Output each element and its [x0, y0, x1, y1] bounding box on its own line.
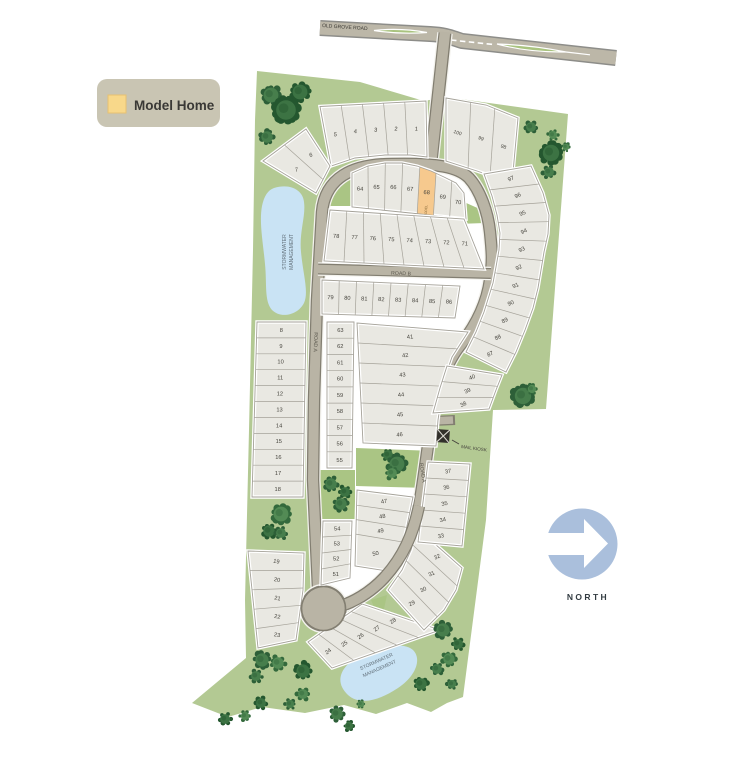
svg-text:70: 70 — [455, 200, 462, 206]
svg-text:44: 44 — [398, 392, 405, 399]
svg-text:57: 57 — [337, 425, 343, 431]
svg-text:53: 53 — [334, 542, 340, 548]
svg-text:48: 48 — [379, 514, 386, 521]
svg-text:42: 42 — [402, 353, 409, 360]
svg-text:66: 66 — [390, 185, 397, 191]
svg-text:12: 12 — [277, 392, 283, 398]
svg-text:NORTH: NORTH — [567, 592, 609, 602]
svg-text:47: 47 — [381, 499, 388, 506]
svg-text:9: 9 — [279, 344, 282, 350]
svg-text:60: 60 — [337, 377, 343, 383]
svg-text:4: 4 — [353, 129, 357, 135]
svg-text:19: 19 — [273, 559, 280, 566]
svg-text:46: 46 — [396, 432, 403, 439]
svg-text:45: 45 — [397, 412, 404, 419]
svg-text:64: 64 — [357, 186, 364, 192]
svg-text:82: 82 — [378, 297, 385, 303]
svg-text:65: 65 — [373, 185, 380, 191]
svg-text:3: 3 — [374, 127, 378, 133]
svg-text:18: 18 — [275, 487, 281, 493]
svg-text:54: 54 — [334, 527, 340, 533]
svg-text:21: 21 — [274, 595, 281, 602]
svg-text:58: 58 — [337, 409, 343, 415]
svg-text:13: 13 — [276, 407, 282, 413]
svg-text:Model Home: Model Home — [134, 98, 215, 113]
svg-text:63: 63 — [337, 328, 343, 334]
svg-text:80: 80 — [344, 296, 351, 302]
svg-text:68: 68 — [423, 190, 430, 196]
svg-text:STORMWATER: STORMWATER — [282, 234, 288, 270]
svg-text:73: 73 — [425, 239, 432, 245]
svg-text:62: 62 — [337, 344, 343, 350]
svg-text:69: 69 — [439, 194, 446, 200]
svg-text:56: 56 — [337, 442, 343, 448]
svg-text:78: 78 — [333, 234, 340, 240]
svg-text:ROAD A: ROAD A — [312, 332, 319, 352]
svg-text:22: 22 — [274, 614, 281, 621]
svg-text:23: 23 — [273, 632, 280, 639]
svg-text:15: 15 — [276, 439, 282, 445]
svg-text:74: 74 — [406, 238, 413, 244]
svg-text:35: 35 — [441, 501, 448, 508]
svg-text:5: 5 — [333, 132, 337, 138]
svg-text:51: 51 — [333, 572, 339, 578]
svg-text:55: 55 — [336, 458, 342, 464]
svg-text:71: 71 — [461, 241, 468, 247]
svg-text:75: 75 — [388, 237, 395, 243]
svg-text:67: 67 — [407, 187, 414, 193]
svg-text:81: 81 — [361, 296, 368, 302]
svg-text:20: 20 — [273, 577, 280, 584]
svg-text:34: 34 — [439, 517, 446, 524]
svg-text:61: 61 — [337, 361, 343, 367]
svg-text:ROAD B: ROAD B — [391, 271, 412, 278]
svg-text:1: 1 — [414, 126, 418, 132]
svg-text:77: 77 — [351, 235, 358, 241]
svg-text:2: 2 — [394, 127, 398, 133]
svg-text:10: 10 — [277, 360, 283, 366]
svg-text:14: 14 — [276, 423, 282, 429]
svg-text:83: 83 — [395, 298, 402, 304]
svg-text:50: 50 — [372, 551, 379, 558]
svg-text:33: 33 — [437, 533, 444, 540]
svg-text:59: 59 — [337, 393, 343, 399]
svg-text:84: 84 — [412, 298, 419, 304]
svg-text:36: 36 — [443, 485, 450, 492]
svg-text:43: 43 — [399, 372, 406, 379]
svg-text:8: 8 — [280, 328, 283, 334]
svg-text:11: 11 — [277, 376, 283, 382]
svg-text:72: 72 — [443, 240, 450, 246]
svg-text:86: 86 — [446, 299, 453, 305]
svg-text:76: 76 — [370, 236, 377, 242]
svg-text:52: 52 — [333, 557, 339, 563]
svg-text:41: 41 — [407, 334, 414, 341]
svg-text:79: 79 — [327, 295, 334, 301]
svg-text:85: 85 — [429, 299, 436, 305]
svg-text:MANAGEMENT: MANAGEMENT — [289, 234, 295, 270]
svg-text:17: 17 — [275, 471, 281, 477]
svg-text:16: 16 — [275, 455, 281, 461]
svg-text:49: 49 — [377, 528, 384, 535]
